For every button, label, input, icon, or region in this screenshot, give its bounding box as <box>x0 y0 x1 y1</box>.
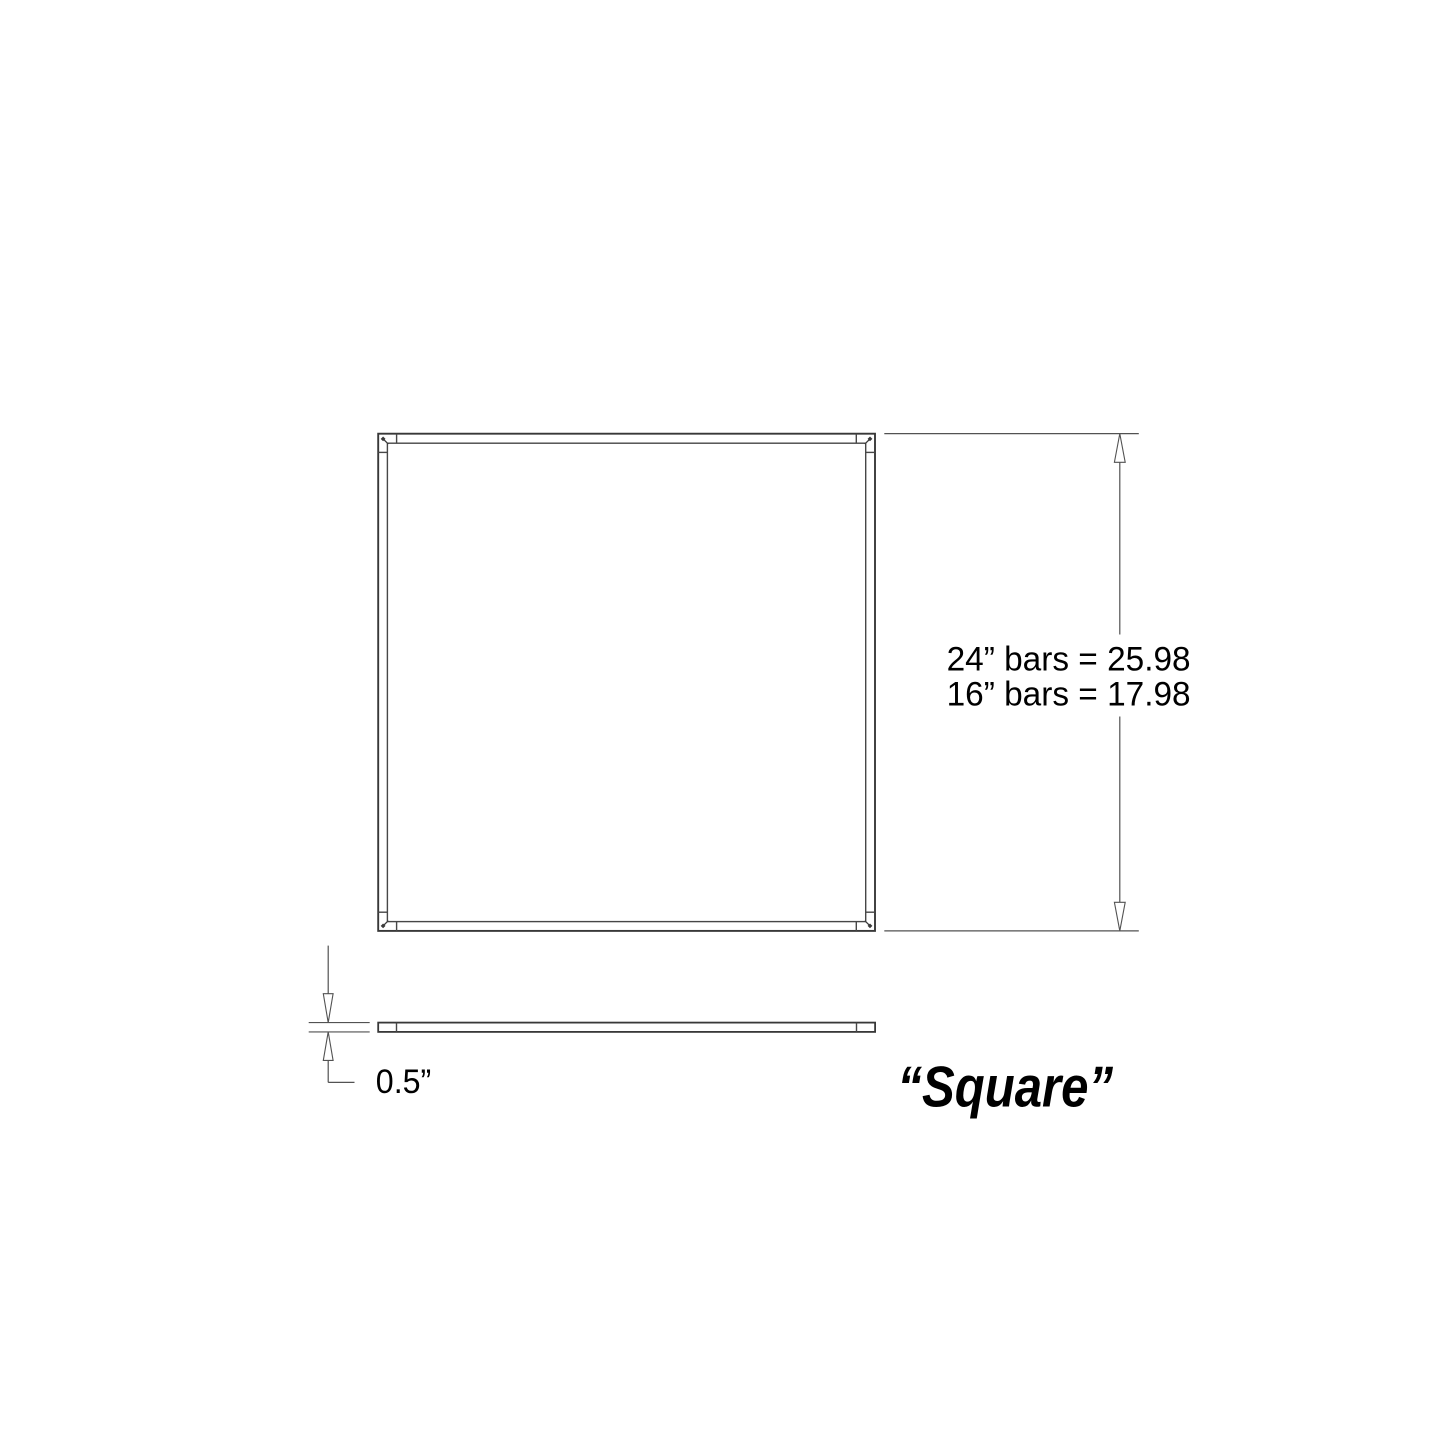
svg-text:“Square”: “Square” <box>898 1056 1114 1120</box>
svg-text:16” bars = 17.98: 16” bars = 17.98 <box>947 675 1191 713</box>
svg-text:24” bars = 25.98: 24” bars = 25.98 <box>947 640 1191 678</box>
svg-text:0.5”: 0.5” <box>376 1063 432 1101</box>
